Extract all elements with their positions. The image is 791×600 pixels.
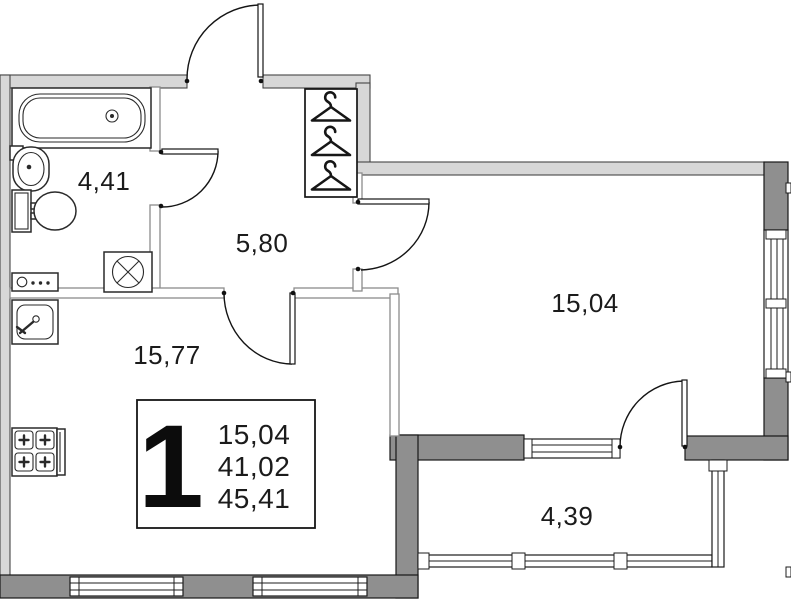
wardrobe [305,89,357,197]
kitchen-living-room-divider [390,294,399,436]
unit-number: 1 [138,401,204,533]
exterior-walls-light [0,75,764,577]
bathroom-door [159,149,218,208]
balcony-door-arc [620,381,684,447]
kitchen-door-arc [224,293,292,364]
entry-door [185,4,264,83]
legend-total-area: 45,41 [218,483,291,514]
balcony-door-leaf [682,380,687,446]
living-room-door-arc [361,202,429,270]
kitchen-door-leaf [290,293,295,364]
wall-step-vertical [356,83,370,169]
kitchen-door [222,291,296,364]
hallway-area-label: 5,80 [236,228,289,258]
living-room-window [764,230,788,378]
entry-door-arc [187,5,261,79]
wall-top-living-room [356,162,764,175]
legend-living-area: 15,04 [218,419,291,450]
balcony-door-window [524,439,620,458]
bathroom-door-leaf [162,149,218,154]
kitchen-top-wall-east [294,288,398,298]
wall-right-upper [764,162,788,230]
entry-door-leaf [258,4,263,77]
legend: 1 15,04 41,02 45,41 [137,400,315,533]
electric-panel-icon [12,273,58,291]
balcony-area-label: 4,39 [541,501,594,531]
wall-top-middle [263,75,370,88]
wall-balcony-left [396,435,418,598]
balcony-door [618,380,688,449]
toilet-icon [12,190,76,232]
bathroom-area-label: 4,41 [78,166,131,196]
living-room-door [356,199,429,271]
wall-bottom-right-band [685,436,788,460]
kitchen-window-1 [70,577,183,596]
bathtub-icon [12,88,151,148]
floor-plan-drawing: 4,41 5,80 15,77 15,04 4,39 1 15,04 41,02… [0,0,791,600]
kitchen-sink-icon [12,300,58,344]
hallway-wall-below-door [353,269,362,291]
wall-left [0,75,10,577]
legend-area-without-balcony: 41,02 [218,451,291,482]
living-room-area-label: 15,04 [551,288,619,318]
wash-basin-icon [10,146,49,191]
bathroom-door-arc [161,151,218,207]
stove-icon [12,428,65,476]
kitchen-window-2 [253,577,367,596]
kitchen-living-area-label: 15,77 [133,340,201,370]
wall-top-left [0,75,187,88]
floor-plan: 4,41 5,80 15,77 15,04 4,39 1 15,04 41,02… [0,0,791,600]
living-room-door-leaf [358,199,429,204]
washing-machine-icon [104,252,152,292]
